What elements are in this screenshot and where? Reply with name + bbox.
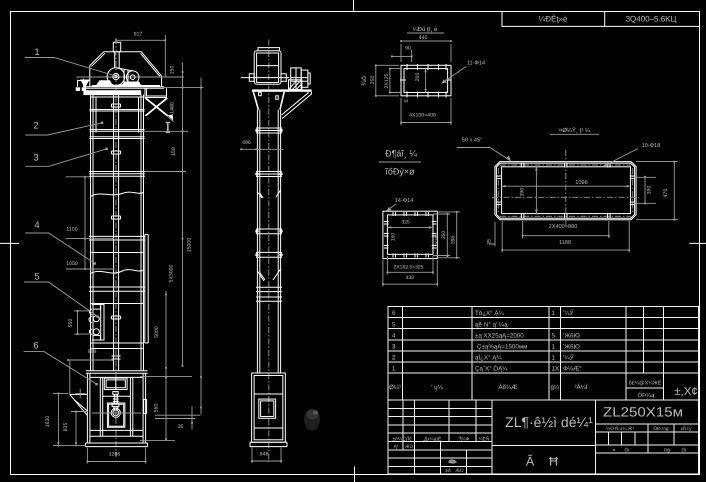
svg-text:ąÏ¿Х° Ą¼: ąÏ¿Х° Ą¼ [475, 354, 502, 362]
svg-text:ģ¼: ģ¼ [550, 384, 559, 391]
svg-text:±ĥ ťỵ: ±ĥ ťỵ [681, 425, 692, 432]
svg-text:496: 496 [242, 140, 251, 146]
svg-text:ÆÛ: ÆÛ [455, 467, 464, 474]
svg-text:550: 550 [68, 319, 74, 328]
svg-text:ʼЖ6Ю: ʼЖ6Ю [563, 332, 580, 339]
svg-text:250: 250 [370, 76, 376, 85]
svg-text:Þģ: Þģ [664, 448, 670, 454]
svg-text:Ťǒ¿Х° Ặ¼: Ťǒ¿Х° Ặ¼ [475, 309, 504, 317]
svg-text:10-Φ18: 10-Φ18 [642, 143, 661, 149]
svg-text:3: 3 [33, 153, 38, 164]
svg-text:¼Đű ţĩ¸ ė: ¼Đű ţĩ¸ ė [413, 26, 438, 33]
svg-text:1630: 1630 [45, 416, 51, 428]
svg-text:3: 3 [392, 344, 396, 351]
svg-text:·Ç±ą%ąĄ=1500мм: ·Ç±ą%ąĄ=1500мм [475, 344, 527, 351]
svg-text:¼ö: ¼ö [361, 76, 368, 86]
svg-text:M: M [404, 99, 408, 104]
svg-text:1180: 1180 [559, 240, 571, 246]
svg-text:36: 36 [178, 424, 184, 430]
svg-text:1: 1 [552, 310, 556, 317]
svg-text:′ ų¼: ′ ų¼ [431, 384, 443, 391]
svg-text:±ą ХХ25ąĄ=2000: ±ą ХХ25ąĄ=2000 [475, 332, 524, 339]
svg-text:1: 1 [552, 355, 556, 362]
svg-text:3Q400–5.6ΚЦ: 3Q400–5.6ΚЦ [626, 15, 677, 24]
svg-text:15000: 15000 [187, 238, 193, 253]
svg-text:150: 150 [171, 147, 177, 156]
svg-text:5Х3000: 5Х3000 [169, 264, 175, 282]
svg-text:5: 5 [34, 272, 39, 283]
svg-text:150: 150 [170, 66, 176, 75]
svg-text:4: 4 [34, 220, 39, 231]
svg-text:ÓÞ¼ą: ÓÞ¼ą [637, 391, 655, 399]
svg-text:ąĕ·Ņ° ą′ ¼ą: ąĕ·Ņ° ą′ ¼ą [475, 321, 508, 328]
svg-text:Ħ: Ħ [549, 455, 558, 469]
svg-text:ĩőĐý×ø: ĩőĐý×ø [384, 167, 415, 177]
svg-text:,Дх¼ą)Ĕ: ,Дх¼ą)Ĕ [423, 435, 441, 442]
svg-text:Φ¼Æ°: Φ¼Æ° [563, 366, 582, 373]
svg-text:90: 90 [405, 46, 411, 52]
svg-text:1480: 1480 [170, 102, 176, 114]
svg-text:5: 5 [552, 332, 556, 339]
svg-text:ЖÛ: ЖÛ [405, 443, 413, 450]
svg-text:398: 398 [450, 236, 456, 245]
svg-text:ʼ¼Ӳ: ʼ¼Ӳ [563, 309, 574, 317]
svg-text:Ă: Ă [526, 455, 535, 469]
svg-text:948: 948 [260, 451, 269, 457]
svg-text:Çą¨Х° ÓĄ¼: Çą¨Х° ÓĄ¼ [475, 365, 508, 373]
svg-text:989: 989 [88, 349, 97, 355]
svg-text:438: 438 [406, 275, 415, 281]
svg-text:1: 1 [34, 47, 39, 58]
svg-text:1: 1 [392, 366, 396, 373]
svg-text:ZL250X15м: ZL250X15м [603, 405, 683, 420]
svg-text:1: 1 [552, 344, 556, 351]
svg-text:¤: ¤ [613, 449, 616, 454]
svg-text:ÓÐ ¼g: ÓÐ ¼g [653, 425, 669, 432]
svg-text:²Ă¼Ï: ²Ă¼Ï [574, 383, 587, 391]
svg-text:4: 4 [392, 332, 396, 339]
svg-text:Ăõ¼Æ: Ăõ¼Æ [499, 383, 518, 391]
svg-text:¼ÈÑ: ¼ÈÑ [479, 435, 490, 442]
svg-text:1286: 1286 [109, 451, 121, 457]
svg-text:¼Ọ Ñ ±¼ Ж¹: ¼Ọ Ñ ±¼ Ж¹ [606, 425, 634, 432]
svg-text:11-Φ14: 11-Φ14 [467, 61, 485, 67]
svg-text:Ą¹: Ą¹ [394, 444, 399, 450]
svg-text:ʼЖ6Ю: ʼЖ6Ю [563, 344, 580, 351]
svg-text:Ǯ¼Ф: Ǯ¼Ф [459, 435, 470, 442]
svg-text:1050: 1050 [66, 261, 78, 267]
svg-text:Đ¶áĩ¸ ¼: Đ¶áĩ¸ ¼ [385, 149, 417, 159]
svg-text:ʼ¼Ӳ: ʼ¼Ӳ [563, 354, 574, 362]
svg-text:390: 390 [647, 186, 653, 195]
svg-text:Óı: Óı [624, 447, 629, 454]
svg-text:14-Φ14: 14-Φ14 [395, 198, 414, 204]
svg-text:4Х100=400: 4Х100=400 [409, 113, 436, 119]
svg-text:5000: 5000 [154, 326, 160, 338]
svg-text:ZL¶·ê½ì dé¼¹: ZL¶·ê½ì dé¼¹ [505, 414, 593, 430]
svg-text:±,Х¢: ±,Х¢ [674, 386, 698, 398]
svg-text:2Х400=800: 2Х400=800 [549, 224, 578, 230]
svg-text:835: 835 [63, 423, 69, 432]
svg-text:390: 390 [520, 188, 526, 197]
svg-text:ő£¼@Х¼ЖЕ: ő£¼@Х¼ЖЕ [629, 381, 662, 387]
svg-text:160: 160 [391, 233, 397, 242]
svg-text:5: 5 [392, 321, 396, 328]
svg-text:±ê¼Ç(Ìč: ±ê¼Ç(Ìč [392, 435, 412, 442]
svg-text:¼ĐÊţ»ė: ¼ĐÊţ»ė [539, 15, 568, 24]
svg-text:±ő: ±ő [445, 468, 451, 474]
svg-text:1100: 1100 [66, 227, 77, 233]
svg-text:6: 6 [33, 341, 38, 352]
svg-text:Óı: Óı [681, 447, 686, 454]
svg-text:1098: 1098 [575, 180, 587, 186]
svg-text:2Х162.5=325: 2Х162.5=325 [394, 265, 424, 271]
svg-text:6: 6 [392, 310, 396, 317]
svg-text:917: 917 [134, 32, 143, 38]
svg-text:325: 325 [401, 220, 410, 226]
svg-text:560: 560 [154, 404, 160, 413]
svg-text:2: 2 [33, 121, 38, 132]
svg-text:2Х125: 2Х125 [384, 73, 390, 88]
svg-text:470: 470 [663, 189, 669, 198]
svg-text:Ø¼¹: Ø¼¹ [389, 384, 401, 391]
svg-text:260: 260 [415, 73, 421, 82]
svg-text:1Х: 1Х [552, 366, 560, 373]
svg-text:2Х162: 2Х162 [434, 233, 439, 247]
svg-text:350: 350 [441, 231, 447, 240]
svg-text:440: 440 [419, 35, 428, 41]
svg-text:¤Ø¼Ŷ¸ ţ¹ ¼: ¤Ø¼Ŷ¸ ţ¹ ¼ [559, 126, 591, 134]
svg-text:2: 2 [392, 355, 396, 362]
svg-text:50 х 45°: 50 х 45° [462, 138, 483, 144]
